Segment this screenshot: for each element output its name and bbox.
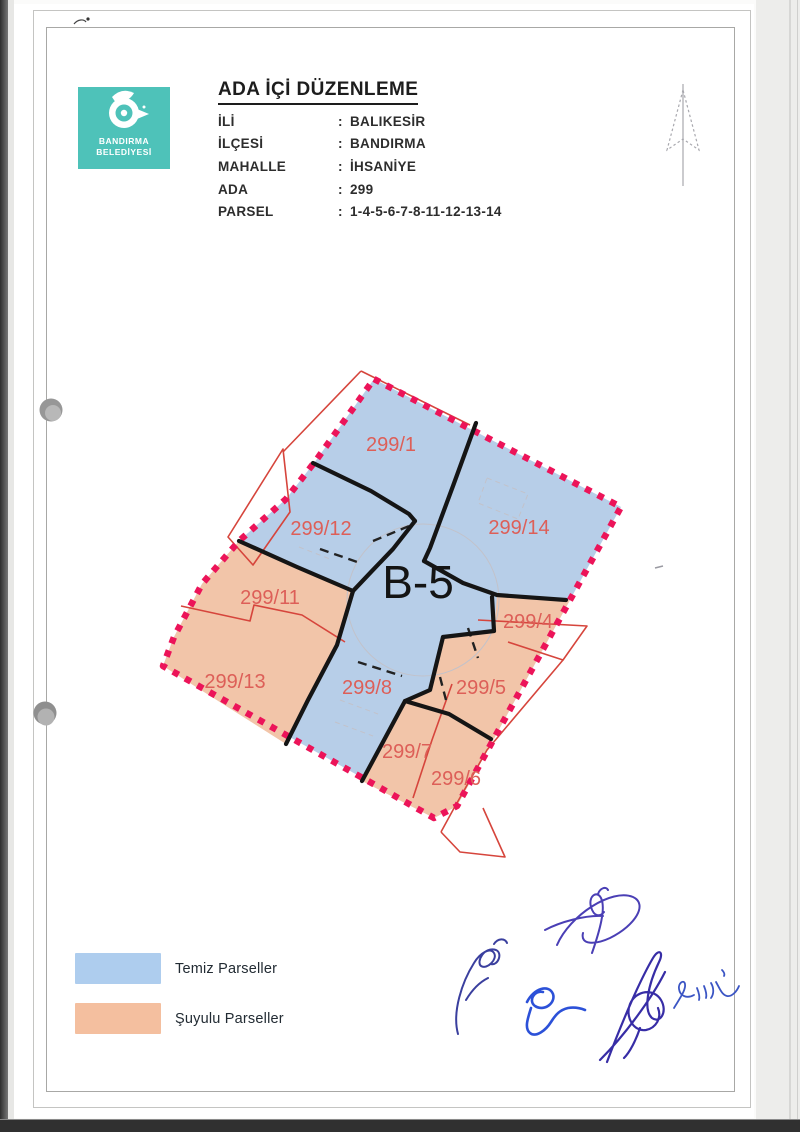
signatures (456, 888, 739, 1062)
block-label: B-5 (382, 556, 454, 608)
signature-3 (545, 888, 640, 953)
parcel-label: 299/11 (240, 587, 300, 609)
parcel-label: 299/5 (456, 677, 506, 699)
parcel-label: 299/6 (431, 768, 481, 790)
signature-2 (527, 988, 585, 1034)
parcel-label: 299/12 (290, 518, 351, 540)
legend-item-suyulu: Şuyulu Parseller (75, 1003, 284, 1034)
parcel-label: 299/14 (488, 517, 549, 539)
parcel-label: 299/8 (342, 677, 392, 699)
scanned-document: BANDIRMA BELEDİYESİ ADA İÇİ DÜZENLEME İL… (0, 0, 800, 1131)
north-arrow-icon (667, 84, 699, 186)
legend-label: Temiz Parseller (175, 961, 277, 977)
legend-label: Şuyulu Parseller (175, 1011, 284, 1027)
pen-mark (74, 17, 90, 24)
parcel-label: 299/1 (366, 434, 416, 456)
legend-swatch-suyulu (75, 1003, 161, 1034)
parcel-label: 299/13 (204, 671, 265, 693)
legend-item-temiz: Temiz Parseller (75, 953, 277, 984)
signature-5 (674, 970, 739, 1008)
hole-punch-top (40, 399, 63, 422)
hole-punch-bottom (34, 702, 57, 726)
signature-4 (600, 952, 665, 1062)
parcel-label: 299/4 (503, 611, 553, 633)
signature-1 (456, 939, 507, 1034)
scan-edge-bottom (0, 1119, 800, 1132)
legend-swatch-temiz (75, 953, 161, 984)
parcel-label: 299/7 (382, 741, 432, 763)
